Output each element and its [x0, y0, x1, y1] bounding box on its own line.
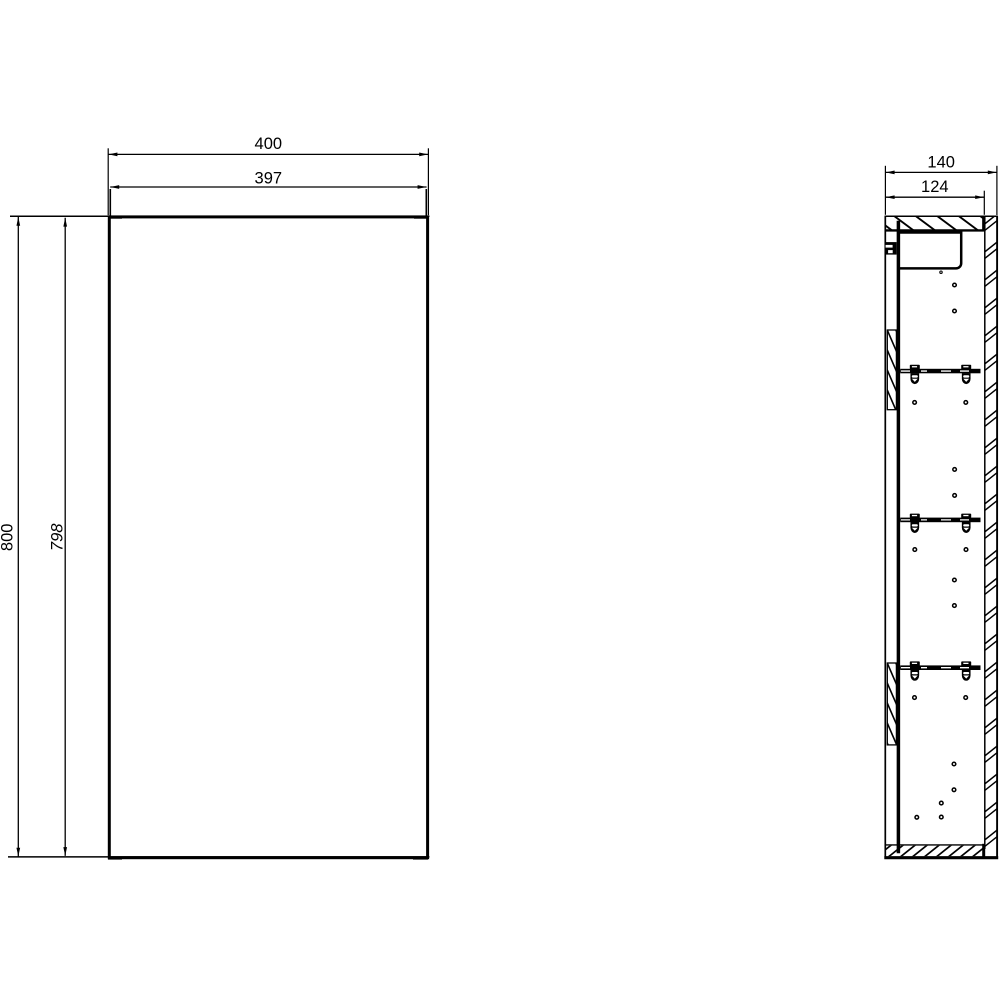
svg-text:800: 800 — [0, 524, 16, 552]
svg-text:124: 124 — [921, 178, 949, 196]
svg-text:798: 798 — [49, 523, 67, 551]
svg-text:400: 400 — [255, 135, 283, 153]
svg-text:140: 140 — [927, 153, 955, 171]
svg-text:397: 397 — [255, 169, 283, 187]
